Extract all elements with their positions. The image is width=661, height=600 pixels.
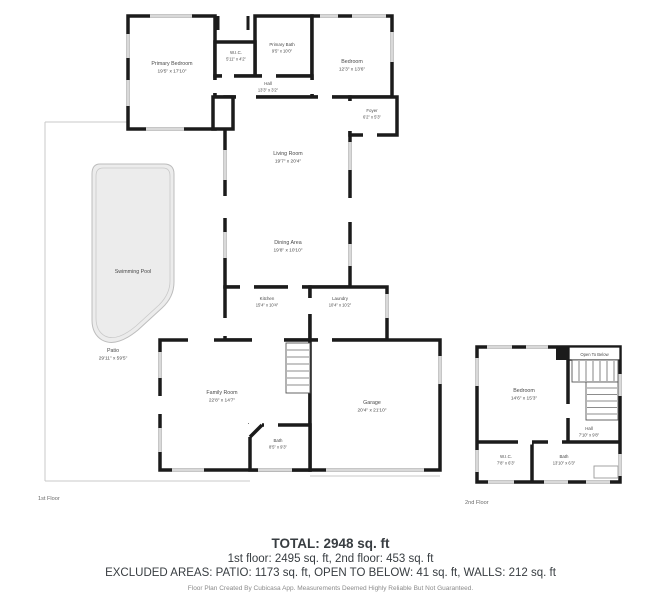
svg-text:Bath: Bath	[559, 454, 569, 459]
total-area-text: TOTAL: 2948 sq. ft	[0, 536, 661, 551]
room-living-dining	[225, 97, 350, 287]
svg-text:19'7" x 20'4": 19'7" x 20'4"	[275, 159, 302, 165]
svg-text:7'10" x 9'8": 7'10" x 9'8"	[579, 433, 600, 438]
svg-text:14'6" x 15'3": 14'6" x 15'3"	[511, 396, 538, 402]
svg-text:Living Room: Living Room	[273, 151, 303, 157]
svg-text:19'5" x 17'10": 19'5" x 17'10"	[158, 69, 187, 75]
floor-plan-page: Primary Bedroom 19'5" x 17'10" W.I.C. 5'…	[0, 0, 661, 600]
svg-text:13'3" x 3'2": 13'3" x 3'2"	[258, 88, 279, 93]
wall-stubs	[218, 16, 248, 30]
svg-text:W.I.C.: W.I.C.	[230, 50, 242, 55]
svg-text:Hall: Hall	[264, 81, 272, 86]
svg-text:Patio: Patio	[107, 348, 119, 354]
svg-text:7'8" x 6'3": 7'8" x 6'3"	[497, 461, 515, 466]
svg-text:Bath: Bath	[273, 438, 283, 443]
svg-text:20'4" x 21'10": 20'4" x 21'10"	[358, 408, 387, 414]
svg-text:Kitchen: Kitchen	[260, 296, 275, 301]
svg-text:22'8" x 14'7": 22'8" x 14'7"	[209, 398, 236, 404]
svg-text:W.I.C.: W.I.C.	[500, 454, 512, 459]
floor-plan-canvas: Primary Bedroom 19'5" x 17'10" W.I.C. 5'…	[0, 0, 661, 600]
disclaimer-text: Floor Plan Created By Cubicasa App. Meas…	[0, 585, 661, 592]
floor-areas-text: 1st floor: 2495 sq. ft, 2nd floor: 453 s…	[0, 553, 661, 565]
excluded-areas-text: EXCLUDED AREAS: PATIO: 1173 sq. ft, OPEN…	[0, 567, 661, 579]
svg-text:Hall: Hall	[585, 426, 593, 431]
second-floor-plan: Open To Below Bedroom 14'6" x 15'3" Hall…	[465, 347, 620, 506]
svg-text:Dining Area: Dining Area	[274, 240, 301, 246]
room-hall	[215, 76, 312, 97]
wall-block	[556, 347, 569, 360]
room-kitchen	[225, 287, 310, 340]
first-floor-caption: 1st Floor	[38, 496, 60, 502]
patio-label: Patio 29'11" x 59'5"	[99, 348, 128, 362]
svg-text:12'3" x 13'6": 12'3" x 13'6"	[339, 67, 366, 73]
svg-text:Primary Bedroom: Primary Bedroom	[151, 61, 193, 67]
svg-text:6'2" x 5'3": 6'2" x 5'3"	[363, 115, 381, 120]
svg-text:29'11" x 59'5": 29'11" x 59'5"	[99, 356, 128, 362]
svg-text:Laundry: Laundry	[332, 296, 349, 301]
staircase-first-floor	[286, 343, 310, 393]
svg-text:10'4" x 10'2": 10'4" x 10'2"	[329, 303, 352, 308]
svg-text:8'5" x 9'3": 8'5" x 9'3"	[269, 445, 287, 450]
swimming-pool-shape	[92, 164, 174, 342]
second-floor-caption: 2nd Floor	[465, 500, 489, 506]
svg-text:Family Room: Family Room	[206, 390, 238, 396]
first-floor-plan: Primary Bedroom 19'5" x 17'10" W.I.C. 5'…	[38, 16, 440, 502]
svg-text:Foyer: Foyer	[366, 108, 378, 113]
closet-stub	[213, 97, 233, 129]
bath-vanity	[594, 466, 618, 478]
svg-text:15'4" x 10'4": 15'4" x 10'4"	[256, 303, 279, 308]
svg-text:Primary Bath: Primary Bath	[269, 42, 295, 47]
room-laundry	[310, 287, 387, 340]
open-to-below-label: Open To Below	[580, 352, 609, 357]
svg-text:13'10" x 6'3": 13'10" x 6'3"	[553, 461, 576, 466]
svg-text:19'8" x 10'10": 19'8" x 10'10"	[274, 248, 303, 254]
svg-text:5'11" x 4'2": 5'11" x 4'2"	[226, 57, 246, 62]
swimming-pool-label: Swimming Pool	[115, 269, 152, 275]
svg-text:Garage: Garage	[363, 400, 381, 406]
svg-text:Bedroom: Bedroom	[513, 388, 535, 394]
room-bedroom	[312, 16, 392, 97]
room-primary-bath-label: Primary Bath 9'5" x 10'0"	[269, 42, 295, 54]
svg-text:9'5" x 10'0": 9'5" x 10'0"	[272, 49, 293, 54]
svg-text:Bedroom: Bedroom	[341, 59, 363, 65]
